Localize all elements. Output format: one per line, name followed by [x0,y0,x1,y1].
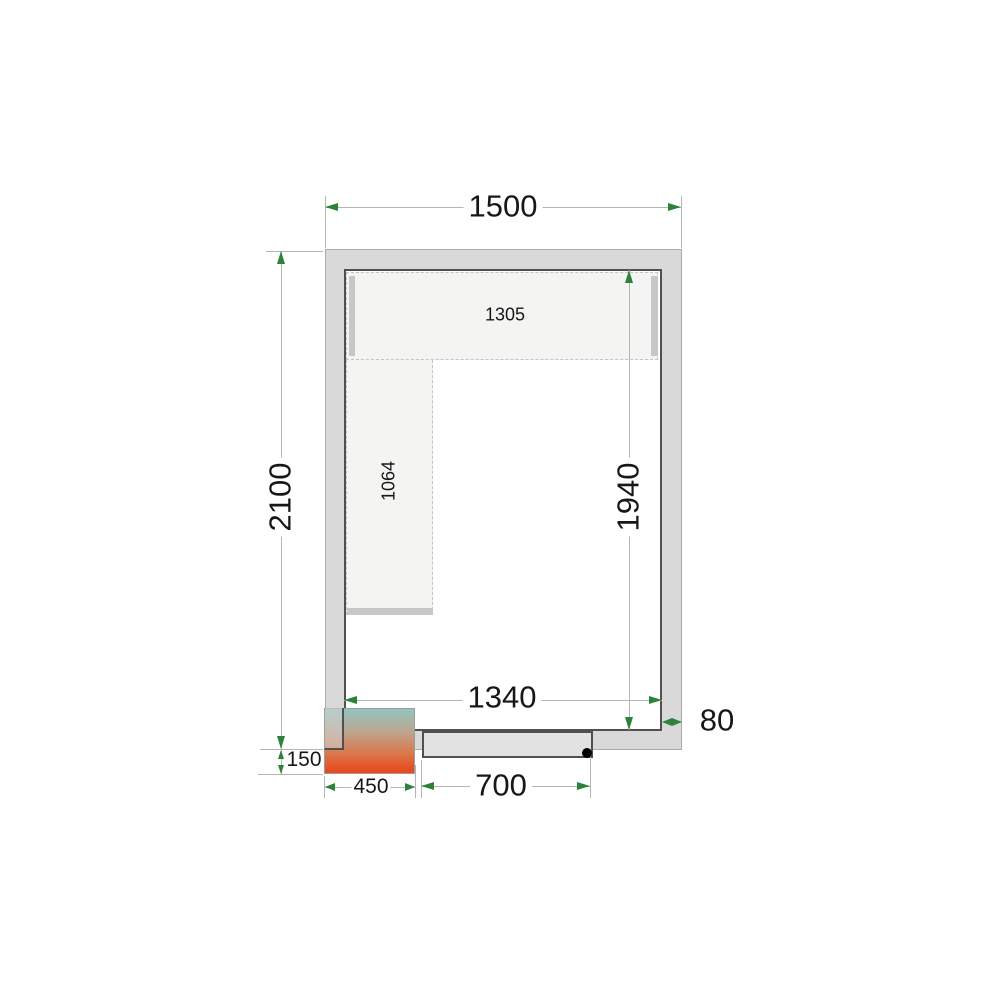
arrow-450-right [405,783,415,791]
arrow-150-up [278,750,284,759]
ext-line-700-right [590,757,591,798]
arrow-80-right [672,718,682,726]
arrow-700-left [421,782,434,790]
arrow-1940-up [625,270,633,283]
ext-line-700-left [421,760,422,798]
arrow-1500-left [325,203,338,211]
arrow-80-left [662,718,672,726]
arrow-1340-left [344,696,357,704]
floor-plan-canvas: 1500 2100 1940 1340 80 150 450 700 1305 … [0,0,1000,1000]
arrow-1340-right [649,696,662,704]
dim-label-outer-depth: 2100 [265,458,298,537]
wall-corner-overlay [324,708,344,750]
dim-label-inner-width: 1340 [463,682,542,715]
arrow-2100-down [277,736,285,749]
arrow-150-down [278,765,284,774]
arrow-1500-right [668,203,681,211]
top-shelf-rail-left [349,276,355,356]
ext-line-1500-right [681,196,682,248]
ext-line-2100-top [266,251,323,252]
left-shelf-rail-bottom [347,608,433,615]
arrow-700-right [577,782,590,790]
top-shelf-rail-right [651,276,658,356]
dim-label-inner-depth: 1940 [613,458,646,537]
ext-line-450-right [415,765,416,798]
shelf-top-length-label: 1305 [485,306,525,325]
door-panel [422,731,593,758]
dim-label-wall-thickness: 80 [695,705,739,738]
arrow-450-left [325,783,335,791]
dim-label-door-opening: 700 [470,770,532,803]
arrow-2100-up [277,251,285,264]
dim-label-outer-width: 1500 [464,191,543,224]
ext-line-150-bottom [258,774,323,775]
arrow-1940-down [625,717,633,730]
dim-label-unit-width: 450 [351,776,390,798]
dim-label-unit-protrusion: 150 [284,749,323,771]
shelf-left-length-label: 1064 [380,461,399,501]
